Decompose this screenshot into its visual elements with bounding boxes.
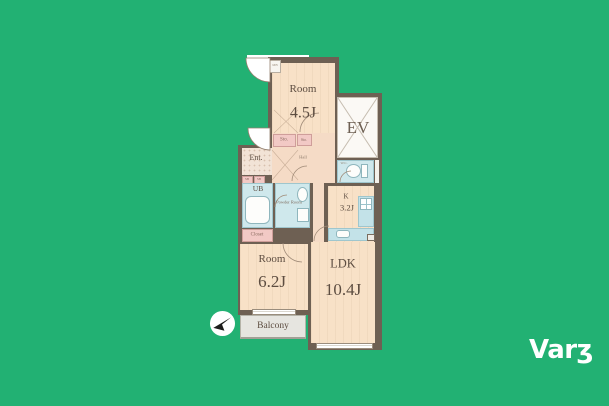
bathtub-icon (245, 196, 270, 224)
elevator-label: EV (347, 119, 370, 137)
shoe-box-2-label: SB (257, 178, 261, 182)
north-arrow-icon (209, 310, 236, 337)
room-6-2-area-label: 6.2J (258, 273, 286, 291)
window-ldk (316, 343, 373, 349)
toilet-tank-icon (361, 164, 368, 178)
storage-2-label: Sto. (301, 138, 307, 142)
kitchen-name-label: K (343, 193, 348, 200)
kitchen-area-label: 3.2J (340, 204, 354, 213)
shoe-box-1-label: SB (245, 178, 249, 182)
toilet-bowl-icon (346, 164, 361, 178)
balcony-label: Balcony (257, 322, 289, 332)
room-4-5-name-label: Room (290, 84, 317, 96)
stove-icon (360, 198, 372, 210)
room-4-5-floor (272, 63, 335, 133)
storage-1-label: Sto. (280, 137, 288, 142)
refrigerator-space (367, 234, 375, 241)
floor-plan: Room 4.5J EV Sto. Sto. Hall Ent. SB SB M… (0, 0, 609, 406)
meter-box-label: MB (272, 64, 277, 68)
room-4-5-area-label: 4.5J (290, 106, 316, 123)
entrance-label: Ent. (249, 154, 262, 162)
powder-room-label: Powder Room (276, 201, 302, 206)
hall-label: Hall (299, 156, 307, 161)
ldk-name-label: LDK (330, 257, 356, 270)
ldk-area-label: 10.4J (325, 281, 361, 299)
room-6-2-name-label: Room (259, 254, 286, 266)
wc-label: W.C. (340, 162, 347, 166)
brand-logo: Varʒ (529, 335, 593, 365)
pipe-space (375, 160, 379, 183)
closet-label: Closet (251, 232, 264, 237)
screenshot-canvas: Room 4.5J EV Sto. Sto. Hall Ent. SB SB M… (0, 0, 609, 406)
unit-bath-label: UB (253, 185, 263, 193)
washer-space-icon (297, 208, 309, 222)
kitchen-sink-icon (336, 230, 350, 238)
corridor-floor (313, 152, 324, 242)
